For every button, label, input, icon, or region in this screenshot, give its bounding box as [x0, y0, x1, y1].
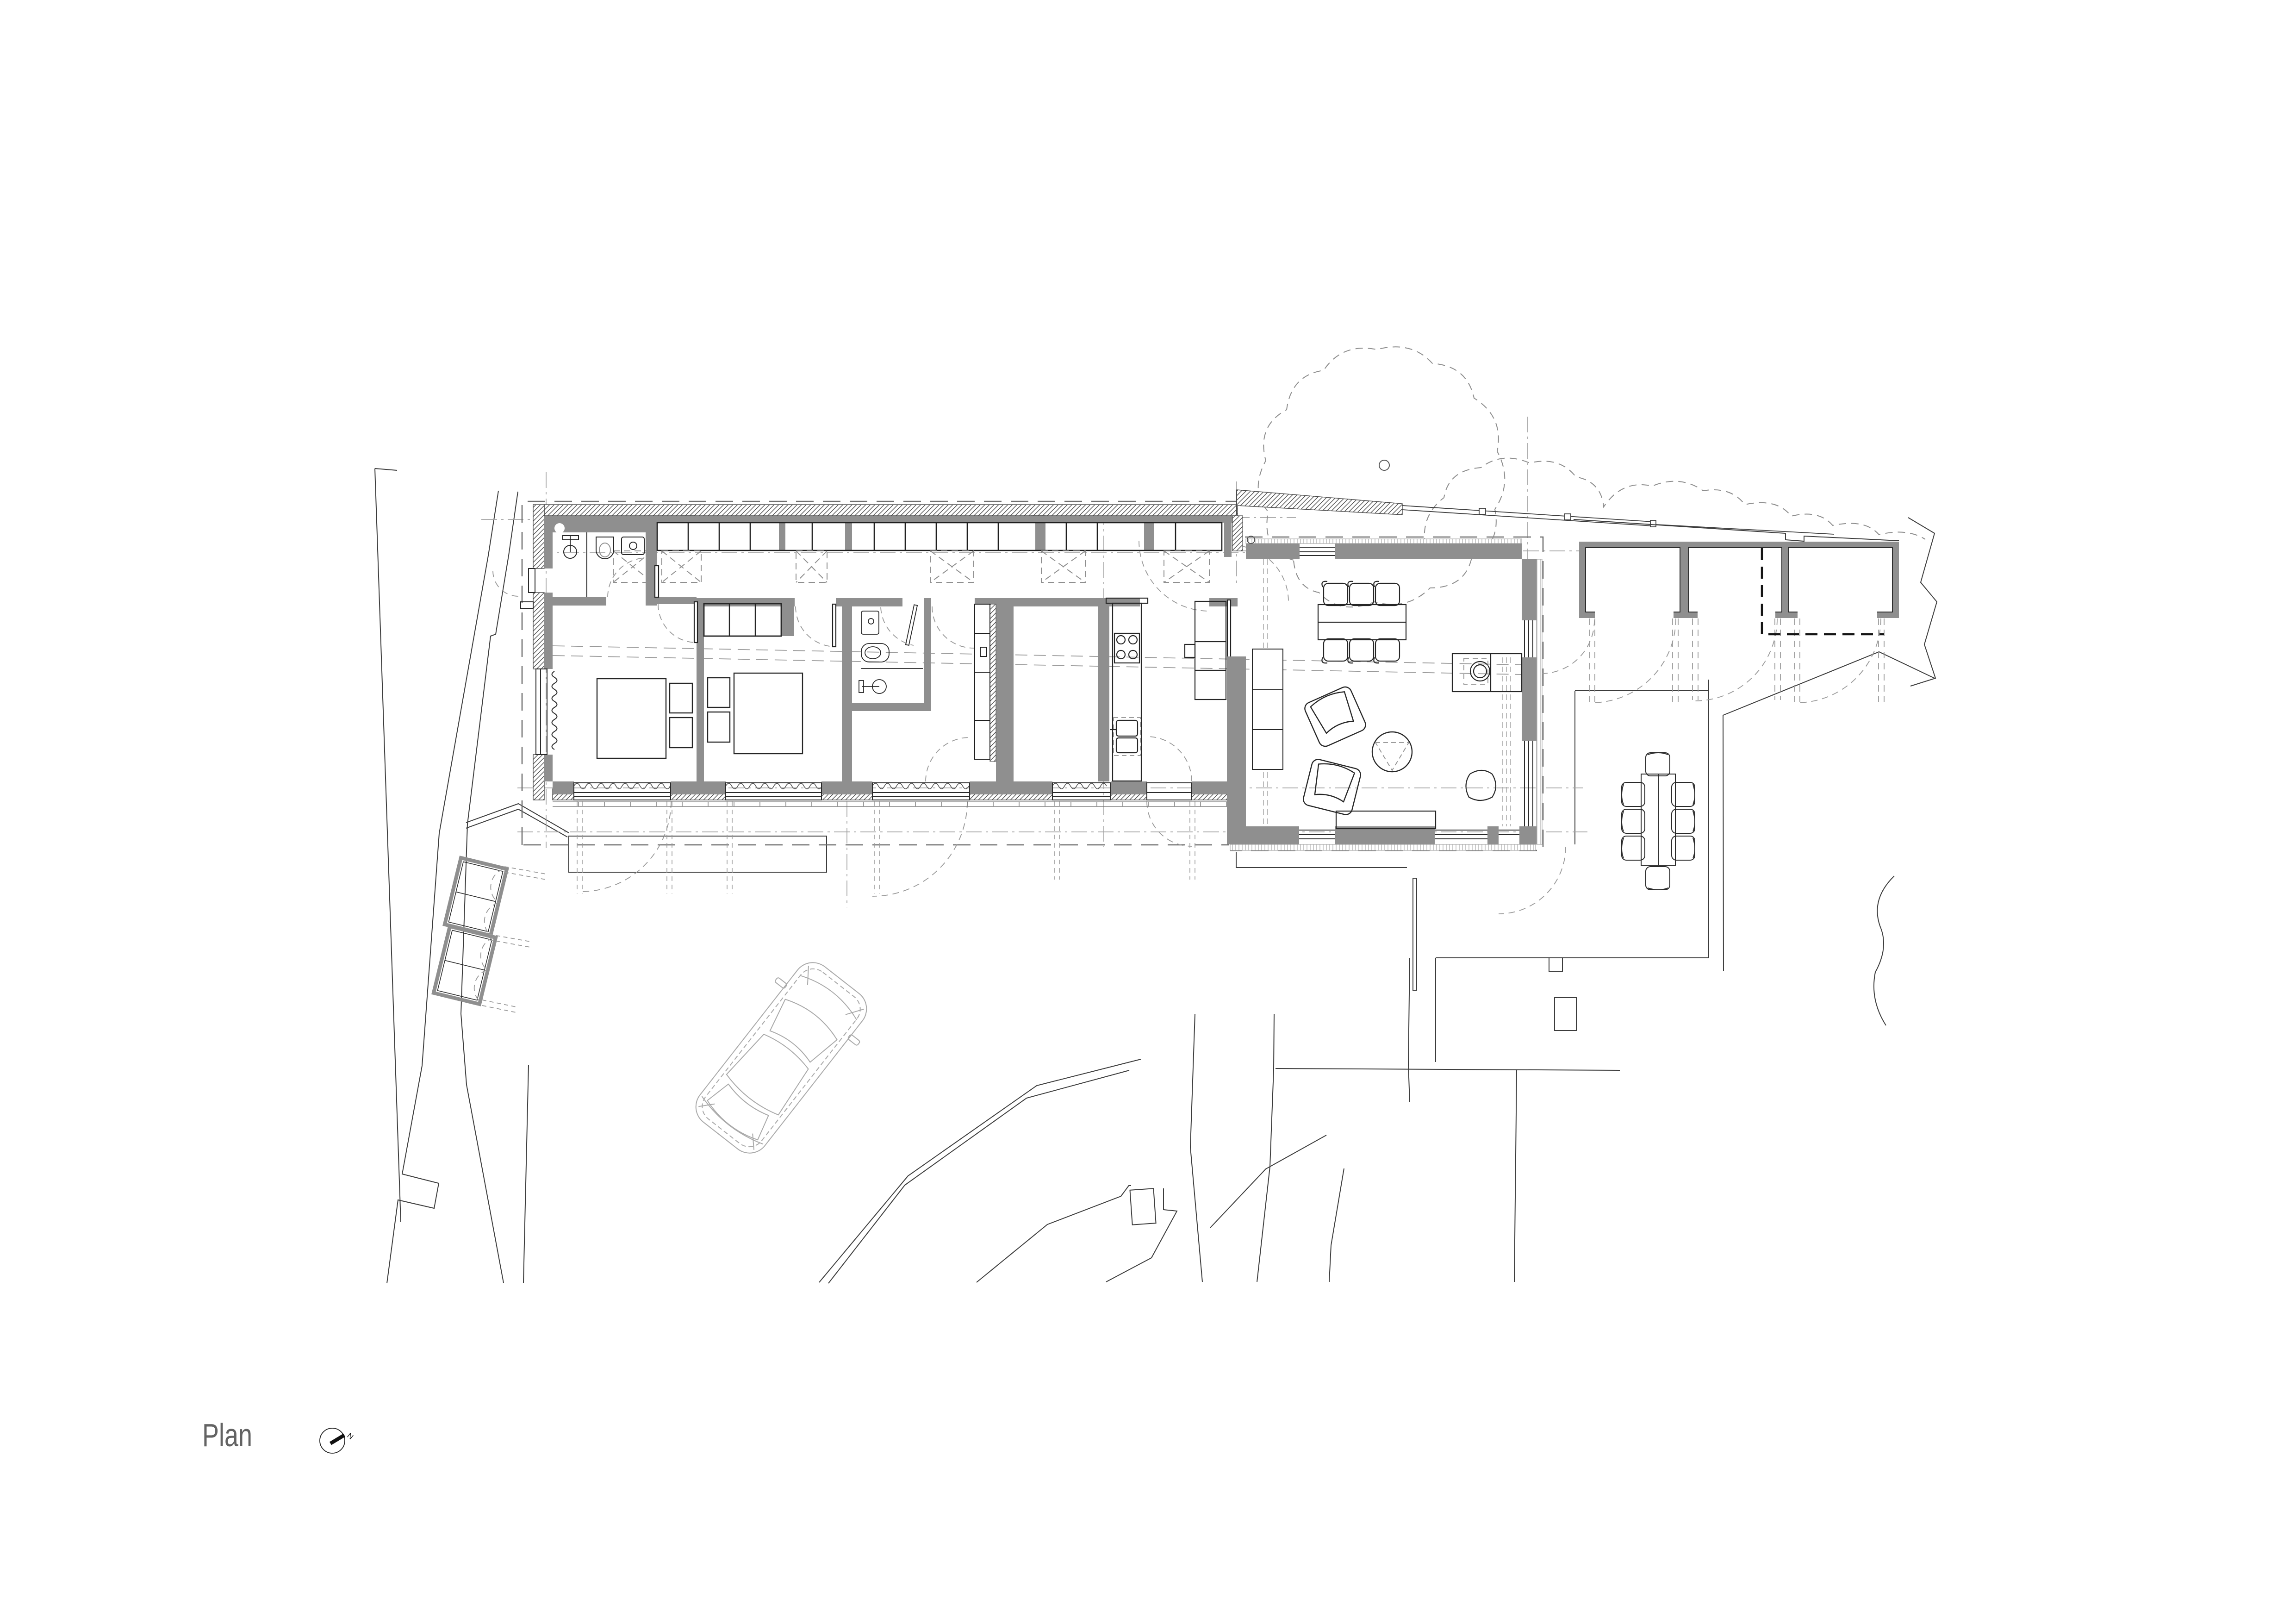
svg-text:Plan: Plan — [202, 1417, 252, 1453]
